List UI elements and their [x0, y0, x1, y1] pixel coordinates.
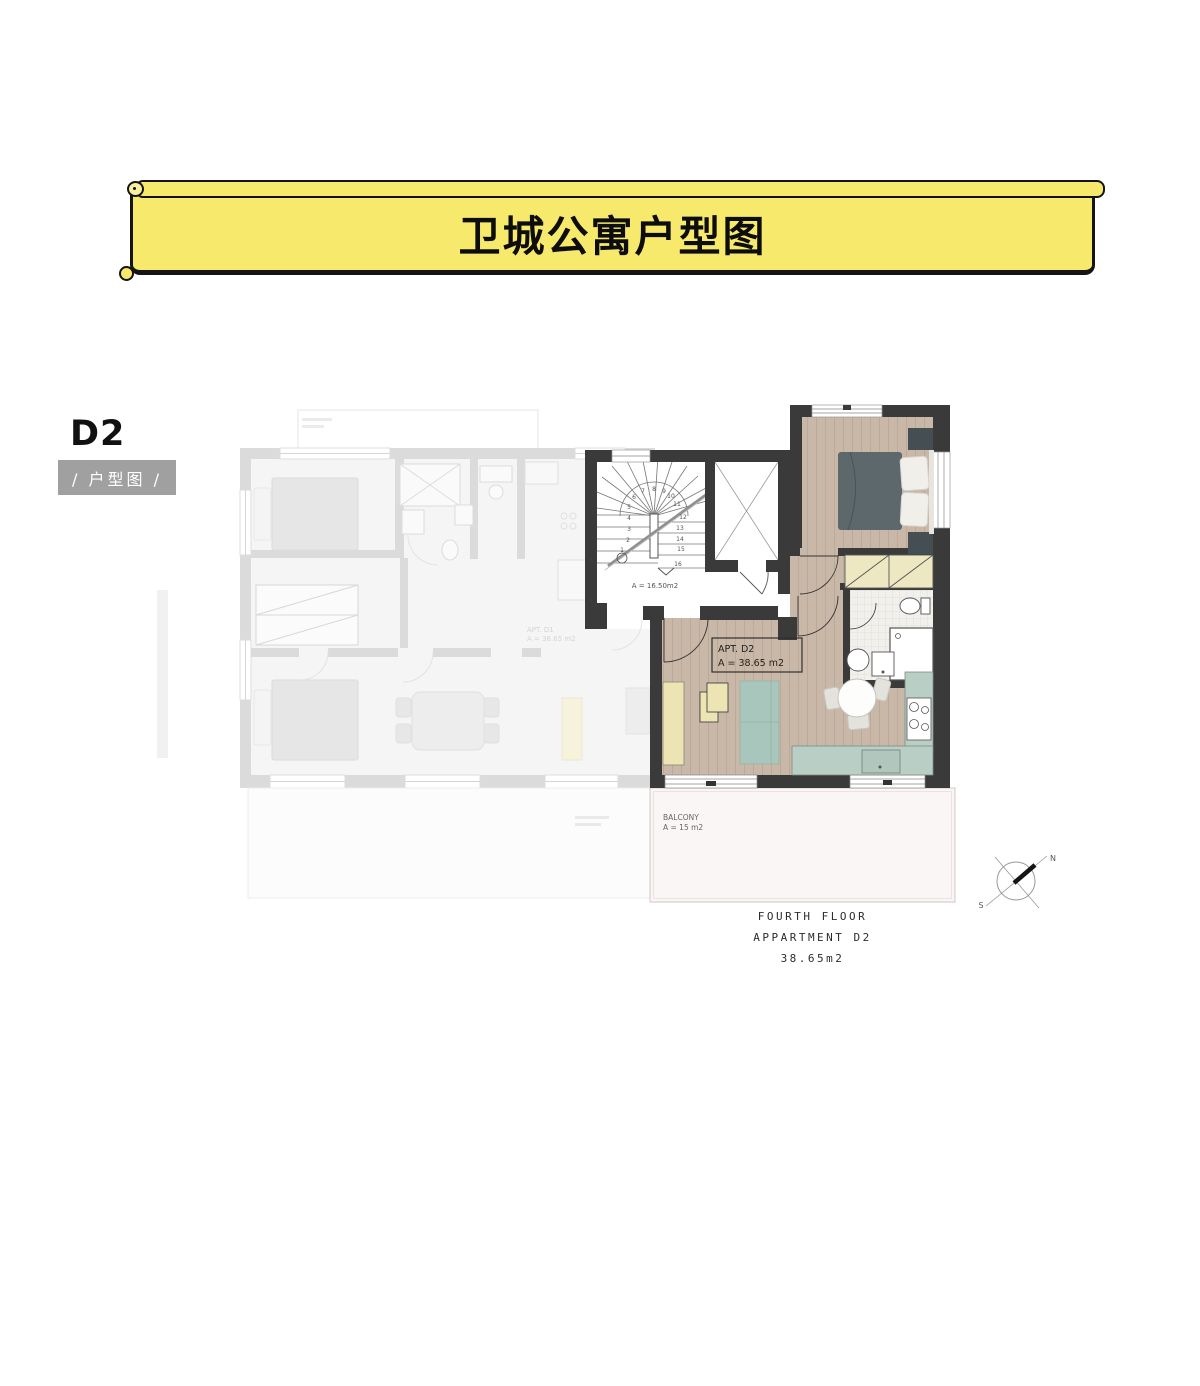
- svg-text:5: 5: [627, 504, 631, 511]
- toilet-icon: [900, 598, 930, 614]
- svg-text:13: 13: [676, 525, 684, 532]
- svg-text:12: 12: [679, 514, 687, 521]
- apartment-label-line1: APT. D2: [718, 644, 754, 655]
- wardrobe-icon: [845, 555, 933, 588]
- faded-wardrobe-icon: [256, 585, 358, 645]
- title-banner: 卫城公寓户型图: [120, 178, 1110, 284]
- banner-scroll-roll: [135, 180, 1105, 198]
- stove-icon: [907, 698, 931, 740]
- faded-sideboard-icon: [626, 688, 650, 734]
- faded-bed-icon: [254, 478, 358, 550]
- unit-code-label: D2: [70, 414, 125, 454]
- banner-scroll-curl-icon: [127, 181, 144, 197]
- floor-plan: APT. D1 A = 38.65 m2 BALCONY A = 15 m2: [150, 380, 1100, 960]
- balcony-label-line1: BALCONY: [663, 813, 699, 822]
- svg-text:4: 4: [627, 515, 631, 522]
- nightstand-icon: [908, 428, 933, 450]
- svg-text:3: 3: [627, 526, 631, 533]
- stairwell-area-label: A = 16.50m2: [632, 582, 678, 590]
- headboard-icon: [929, 450, 934, 534]
- svg-text:16: 16: [674, 561, 682, 568]
- side-table-icon: [707, 683, 728, 712]
- faded-adjacent-apartment: APT. D1 A = 38.65 m2: [157, 410, 655, 898]
- svg-text:15: 15: [677, 546, 685, 553]
- svg-text:9: 9: [662, 488, 666, 495]
- compass-north-label: N: [1050, 854, 1056, 863]
- washer-icon: [872, 652, 894, 676]
- bed-icon: [838, 452, 902, 530]
- bedroom-top-window: [812, 405, 882, 417]
- pillow-icon: [900, 492, 929, 526]
- kitchen-window: [850, 775, 925, 788]
- svg-text:8: 8: [652, 486, 656, 493]
- banner-body: 卫城公寓户型图: [130, 192, 1095, 275]
- kitchen-sink-icon: [862, 750, 900, 773]
- svg-text:6: 6: [632, 494, 636, 501]
- page-title: 卫城公寓户型图: [458, 203, 766, 264]
- bedroom-side-window: [933, 452, 950, 528]
- balcony-label-line2: A = 15 m2: [663, 823, 703, 832]
- svg-text:14: 14: [676, 536, 684, 543]
- caption-area: 38.65m2: [690, 948, 935, 969]
- svg-text:11: 11: [673, 501, 681, 508]
- svg-text:10: 10: [667, 493, 675, 500]
- faded-unit-label-line1: APT. D1: [527, 626, 554, 634]
- living-window: [665, 775, 757, 788]
- compass-icon: N S: [978, 854, 1056, 910]
- svg-text:1: 1: [620, 547, 624, 554]
- faded-unit-label-line2: A = 38.65 m2: [527, 635, 576, 643]
- cabinet-icon: [663, 682, 684, 765]
- plan-caption: FOURTH FLOOR APPARTMENT D2 38.65m2: [690, 906, 935, 969]
- stairwell-window: [612, 450, 650, 462]
- apartment-label-line2: A = 38.65 m2: [718, 658, 784, 669]
- bathroom: [847, 590, 933, 680]
- compass-south-label: S: [978, 901, 983, 910]
- caption-floor: FOURTH FLOOR: [690, 906, 935, 927]
- faded-roof-outline: [298, 410, 538, 452]
- svg-text:2: 2: [626, 537, 630, 544]
- balcony: BALCONY A = 15 m2: [650, 788, 955, 902]
- faded-cabinet-icon: [562, 698, 582, 760]
- sink-icon: [847, 649, 869, 671]
- caption-apartment: APPARTMENT D2: [690, 927, 935, 948]
- sofa-icon: [740, 681, 779, 764]
- svg-text:7: 7: [641, 488, 645, 495]
- faded-balcony: [248, 788, 650, 898]
- faded-neighbor-wall: [157, 590, 168, 758]
- nightstand-icon: [908, 532, 933, 554]
- pillow-icon: [900, 456, 929, 491]
